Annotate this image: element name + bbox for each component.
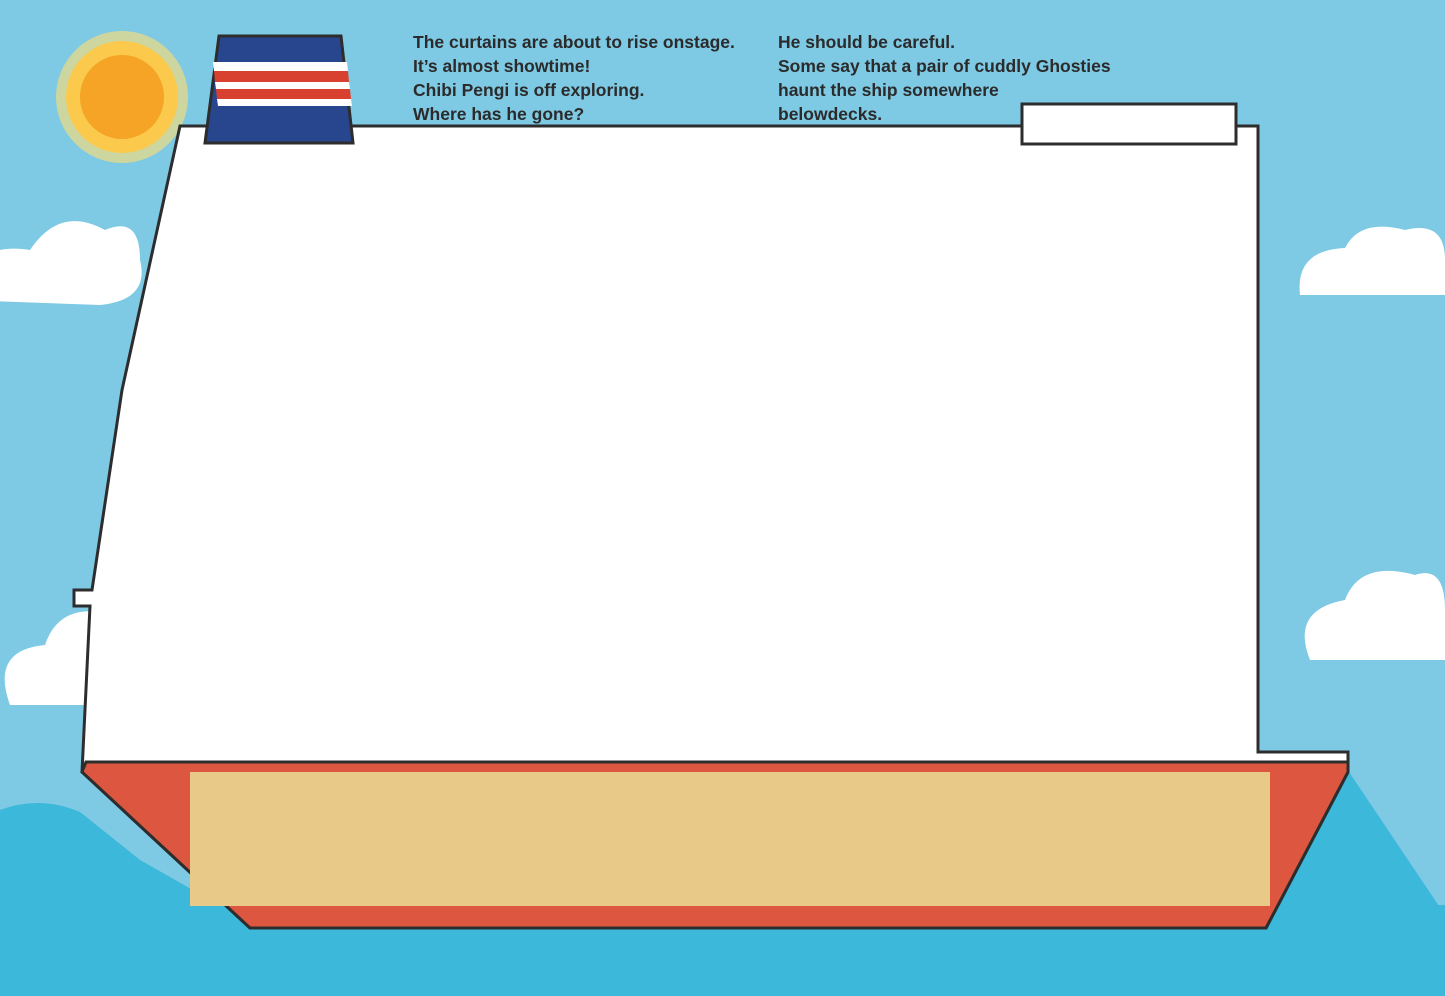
svg-text:haunt the ship somewhere: haunt the ship somewhere [778,80,999,100]
svg-text:It’s almost showtime!: It’s almost showtime! [413,56,590,76]
svg-text:belowdecks.: belowdecks. [778,104,882,124]
svg-text:He should be careful.: He should be careful. [778,32,955,52]
svg-text:Where has he gone?: Where has he gone? [413,104,584,124]
svg-text:Chibi Pengi is off exploring.: Chibi Pengi is off exploring. [413,80,644,100]
svg-text:Some say that a pair of cuddly: Some say that a pair of cuddly Ghosties [778,56,1111,76]
svg-text:The curtains are about to rise: The curtains are about to rise onstage. [413,32,735,52]
